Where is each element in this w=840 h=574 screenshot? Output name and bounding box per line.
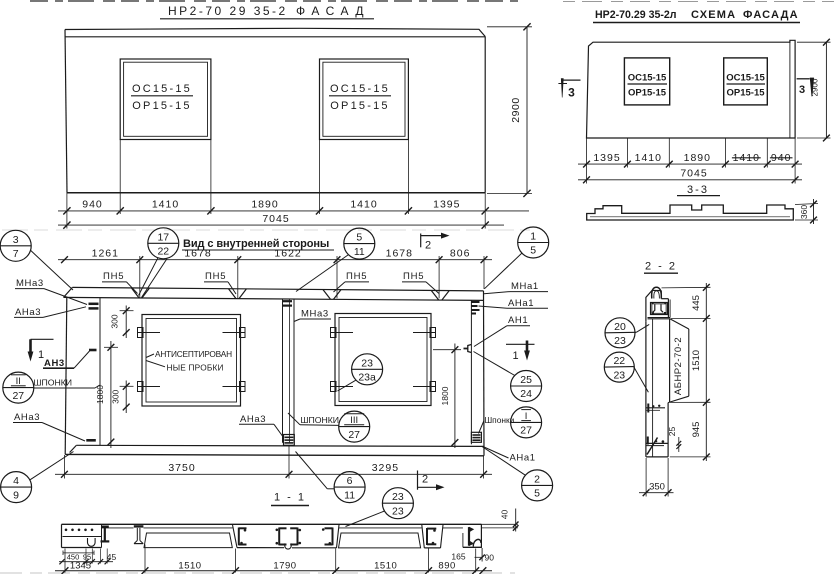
svg-text:23: 23 bbox=[361, 357, 373, 369]
svg-text:АНа1: АНа1 bbox=[510, 453, 536, 464]
svg-text:7045: 7045 bbox=[680, 168, 707, 180]
svg-text:23: 23 bbox=[392, 491, 404, 503]
svg-text:НР2-70.29 35-2л: НР2-70.29 35-2л bbox=[595, 9, 677, 21]
svg-text:1678: 1678 bbox=[184, 248, 211, 260]
svg-text:ОР15-15: ОР15-15 bbox=[628, 88, 667, 99]
svg-text:2900: 2900 bbox=[510, 97, 522, 122]
svg-text:МНа1: МНа1 bbox=[511, 281, 539, 292]
svg-text:23: 23 bbox=[614, 335, 626, 347]
svg-text:ШПОНКИ: ШПОНКИ bbox=[34, 377, 73, 387]
svg-text:ОР15-15: ОР15-15 bbox=[726, 88, 765, 99]
svg-text:2: 2 bbox=[425, 240, 431, 252]
svg-text:ФАСАД: ФАСАД bbox=[296, 4, 370, 18]
svg-text:940: 940 bbox=[82, 199, 103, 211]
svg-text:6: 6 bbox=[347, 475, 353, 487]
svg-text:22: 22 bbox=[613, 355, 625, 367]
svg-text:3: 3 bbox=[568, 86, 575, 100]
svg-text:1: 1 bbox=[513, 350, 519, 362]
svg-text:АБНР2-70-2: АБНР2-70-2 bbox=[673, 337, 684, 395]
svg-text:3750: 3750 bbox=[168, 462, 195, 474]
svg-text:ОС15-15: ОС15-15 bbox=[132, 83, 192, 95]
svg-text:ОС15-15: ОС15-15 bbox=[628, 73, 667, 84]
svg-text:300: 300 bbox=[110, 314, 120, 328]
svg-text:25: 25 bbox=[667, 427, 677, 437]
svg-text:МНа3: МНа3 bbox=[16, 278, 44, 289]
svg-text:2: 2 bbox=[534, 473, 540, 485]
svg-text:АНа3: АНа3 bbox=[240, 414, 266, 425]
svg-text:1510: 1510 bbox=[178, 561, 201, 572]
svg-text:ПН5: ПН5 bbox=[103, 271, 124, 282]
svg-text:17: 17 bbox=[157, 231, 169, 243]
svg-text:27: 27 bbox=[12, 390, 24, 402]
svg-text:АНа1: АНа1 bbox=[508, 298, 534, 309]
svg-text:НЫЕ ПРОБКИ: НЫЕ ПРОБКИ bbox=[167, 362, 224, 372]
svg-text:1345: 1345 bbox=[70, 561, 91, 572]
svg-text:1 - 1: 1 - 1 bbox=[274, 492, 306, 504]
svg-text:1410: 1410 bbox=[152, 199, 179, 211]
svg-text:24: 24 bbox=[520, 388, 532, 400]
svg-text:ОС15-15: ОС15-15 bbox=[330, 83, 390, 95]
svg-text:ШПОНКИ: ШПОНКИ bbox=[301, 415, 340, 425]
svg-text:5: 5 bbox=[356, 232, 362, 244]
svg-text:3: 3 bbox=[13, 234, 19, 246]
svg-text:9: 9 bbox=[13, 489, 19, 501]
svg-text:20: 20 bbox=[614, 321, 626, 333]
svg-text:7045: 7045 bbox=[262, 213, 289, 225]
svg-text:45: 45 bbox=[107, 552, 117, 562]
svg-text:НР2-70 29 35-2: НР2-70 29 35-2 bbox=[168, 4, 288, 18]
svg-text:11: 11 bbox=[354, 246, 365, 258]
svg-text:5: 5 bbox=[530, 245, 536, 257]
svg-text:1890: 1890 bbox=[684, 152, 711, 164]
svg-text:2: 2 bbox=[422, 474, 428, 486]
svg-text:1800: 1800 bbox=[440, 386, 450, 405]
svg-text:3: 3 bbox=[799, 84, 805, 96]
svg-text:11: 11 bbox=[344, 489, 355, 501]
svg-text:ПН5: ПН5 bbox=[346, 271, 367, 282]
svg-text:1: 1 bbox=[530, 231, 536, 243]
svg-text:ОР15-15: ОР15-15 bbox=[330, 100, 389, 112]
svg-text:23: 23 bbox=[392, 505, 404, 517]
svg-text:40: 40 bbox=[499, 510, 509, 520]
svg-text:4: 4 bbox=[13, 475, 19, 487]
svg-text:ПН5: ПН5 bbox=[403, 271, 424, 282]
svg-text:СХЕМА: СХЕМА bbox=[691, 9, 736, 21]
svg-text:23: 23 bbox=[613, 369, 625, 381]
svg-text:1800: 1800 bbox=[95, 385, 105, 404]
svg-text:22: 22 bbox=[157, 246, 169, 258]
svg-text:2 - 2: 2 - 2 bbox=[645, 261, 677, 273]
svg-text:27: 27 bbox=[520, 425, 532, 437]
svg-text:АН3: АН3 bbox=[44, 358, 65, 369]
svg-text:7: 7 bbox=[13, 248, 19, 260]
svg-text:445: 445 bbox=[691, 295, 702, 311]
svg-text:1395: 1395 bbox=[593, 152, 620, 164]
svg-text:МНа3: МНа3 bbox=[301, 309, 329, 320]
svg-text:ОС15-15: ОС15-15 bbox=[726, 73, 765, 84]
svg-text:1410: 1410 bbox=[635, 152, 662, 164]
svg-text:945: 945 bbox=[691, 422, 702, 438]
svg-text:АНа3: АНа3 bbox=[14, 412, 40, 423]
svg-text:890: 890 bbox=[438, 561, 455, 572]
svg-text:ФАСАДА: ФАСАДА bbox=[743, 9, 799, 21]
svg-text:350: 350 bbox=[649, 481, 665, 492]
svg-text:27: 27 bbox=[348, 429, 360, 441]
svg-text:360: 360 bbox=[799, 205, 809, 219]
svg-text:23а: 23а bbox=[358, 372, 376, 384]
svg-text:1678: 1678 bbox=[386, 248, 413, 260]
svg-text:5: 5 bbox=[534, 488, 540, 500]
svg-text:1622: 1622 bbox=[274, 248, 301, 260]
svg-text:АН1: АН1 bbox=[508, 315, 528, 326]
svg-text:1261: 1261 bbox=[92, 248, 119, 260]
svg-text:806: 806 bbox=[450, 248, 471, 260]
svg-text:25: 25 bbox=[520, 374, 532, 386]
svg-text:3295: 3295 bbox=[372, 462, 399, 474]
svg-text:300: 300 bbox=[110, 389, 120, 403]
svg-text:АНа3: АНа3 bbox=[15, 307, 41, 318]
svg-text:ОР15-15: ОР15-15 bbox=[132, 100, 191, 112]
svg-text:1395: 1395 bbox=[433, 199, 460, 211]
svg-text:1890: 1890 bbox=[251, 199, 278, 211]
svg-text:90: 90 bbox=[485, 552, 495, 562]
svg-text:АНТИСЕПТИРОВАН: АНТИСЕПТИРОВАН bbox=[155, 349, 232, 359]
svg-text:3-3: 3-3 bbox=[687, 184, 709, 196]
svg-text:ПН5: ПН5 bbox=[205, 271, 226, 282]
svg-text:1510: 1510 bbox=[691, 350, 702, 371]
svg-text:2900: 2900 bbox=[810, 78, 819, 96]
svg-text:1790: 1790 bbox=[273, 561, 296, 572]
svg-text:1410: 1410 bbox=[350, 199, 377, 211]
svg-text:1510: 1510 bbox=[374, 561, 397, 572]
